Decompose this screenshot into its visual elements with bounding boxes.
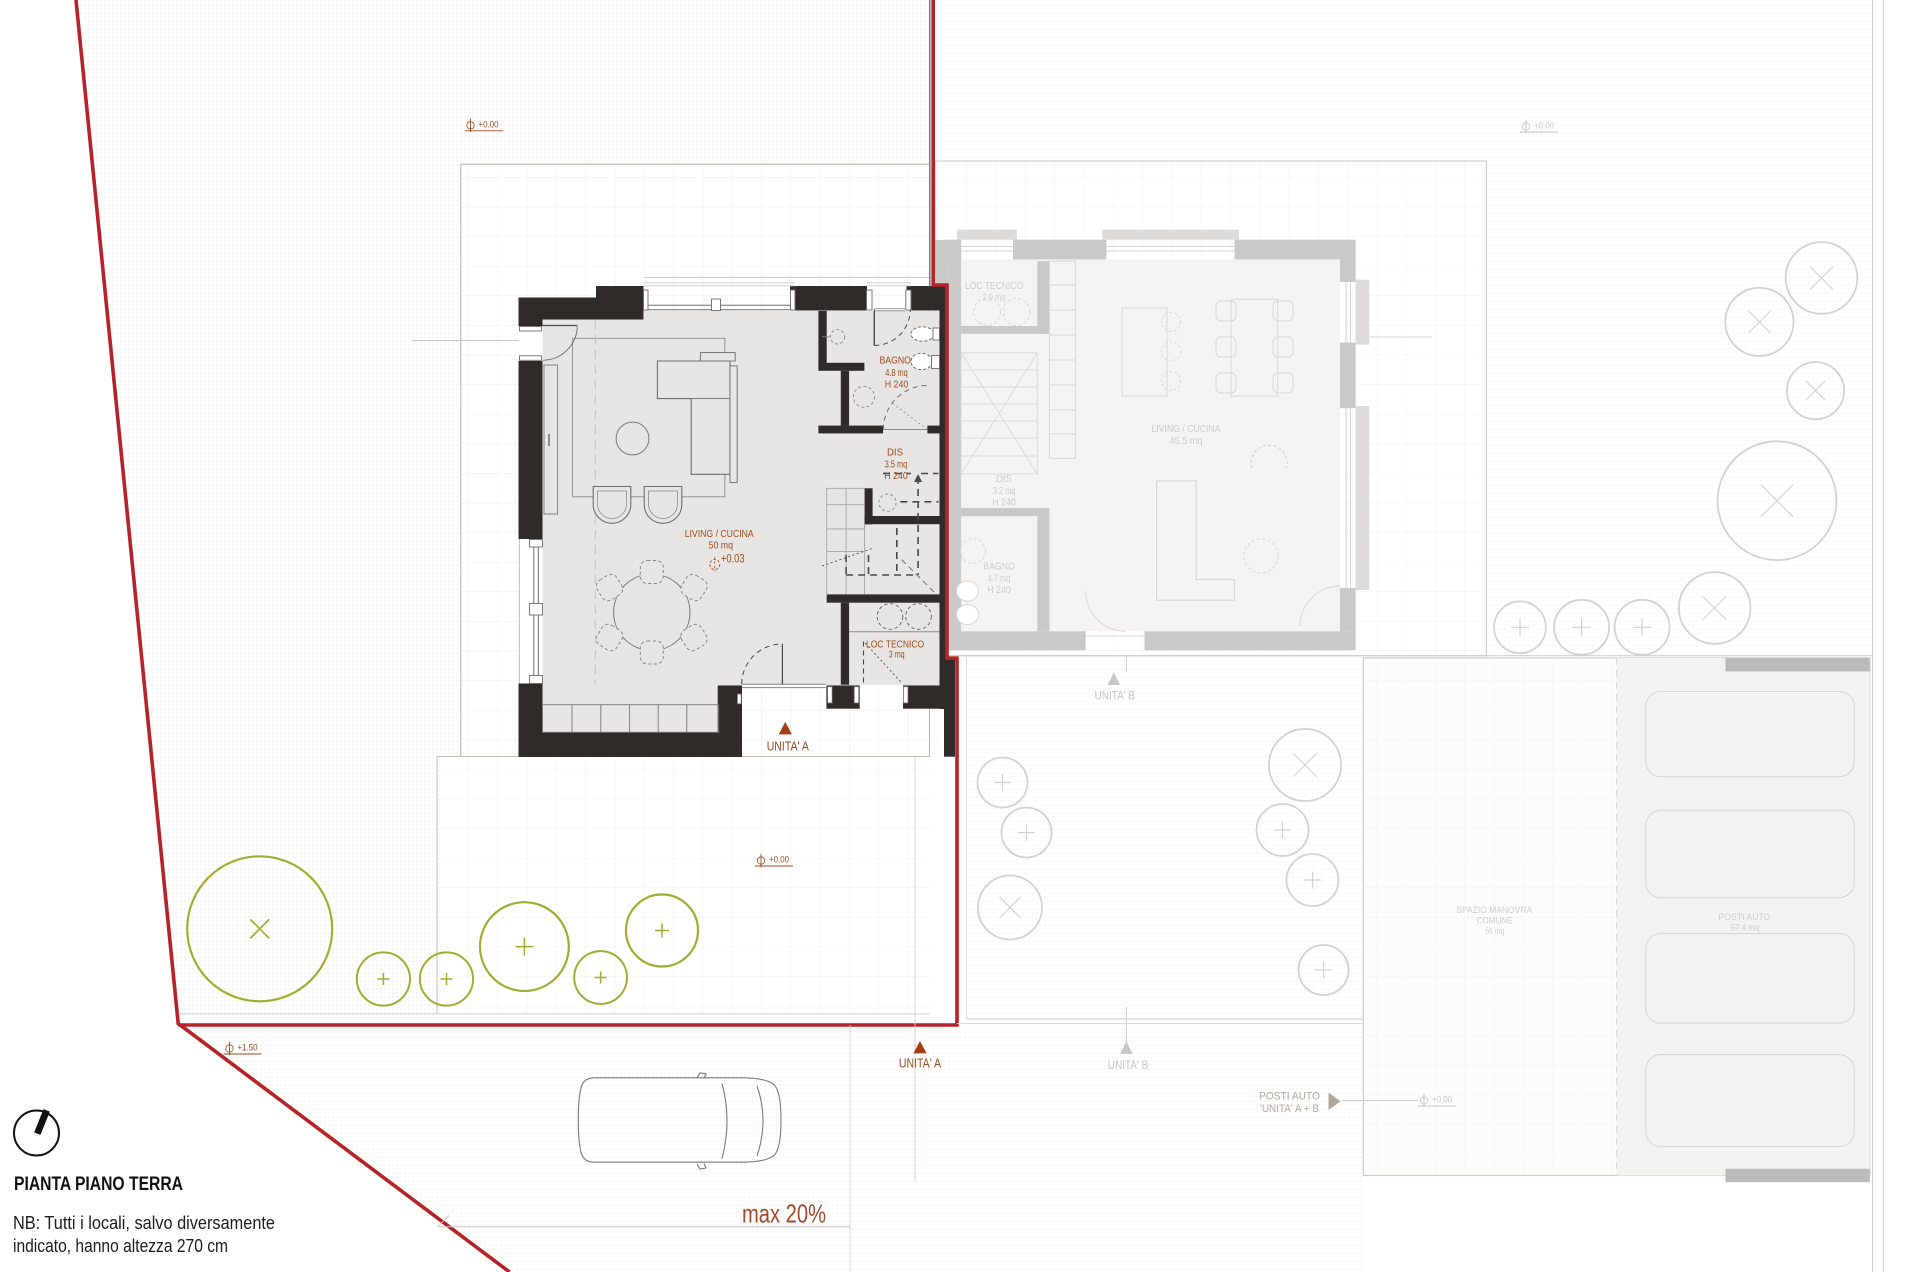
svg-text:UNITA' A: UNITA' A — [899, 1057, 942, 1071]
svg-text:+0.00: +0.00 — [1534, 121, 1554, 131]
svg-text:H 240: H 240 — [885, 379, 909, 390]
svg-text:LIVING / CUCINA: LIVING / CUCINA — [685, 529, 754, 540]
svg-text:LIVING / CUCINA: LIVING / CUCINA — [1152, 424, 1221, 435]
svg-text:H 240: H 240 — [992, 498, 1016, 509]
svg-text:3 mq: 3 mq — [889, 650, 905, 661]
svg-text:UNITA' B: UNITA' B — [1108, 1058, 1149, 1072]
svg-text:3.5 mq: 3.5 mq — [885, 459, 908, 470]
svg-text:+0.00: +0.00 — [479, 120, 499, 130]
svg-text:+1.50: +1.50 — [238, 1043, 258, 1053]
svg-text:H 240: H 240 — [884, 471, 908, 482]
svg-text:UNITA' A: UNITA' A — [767, 740, 810, 754]
svg-text:H 240: H 240 — [987, 585, 1011, 596]
svg-text:UNITA' B: UNITA' B — [1095, 689, 1136, 703]
svg-text:PIANTA PIANO TERRA: PIANTA PIANO TERRA — [14, 1173, 183, 1195]
svg-text:+0.03: +0.03 — [721, 554, 745, 566]
svg-text:56 mq: 56 mq — [1485, 926, 1504, 936]
svg-text:LOC TECNICO: LOC TECNICO — [965, 281, 1024, 292]
svg-text:indicato, hanno altezza 270 cm: indicato, hanno altezza 270 cm — [13, 1235, 228, 1256]
svg-text:50 mq: 50 mq — [709, 541, 734, 552]
svg-text:POSTI AUTO: POSTI AUTO — [1718, 912, 1770, 922]
svg-text:BAGNO: BAGNO — [983, 562, 1015, 573]
svg-text:SPAZIO MANOVRA: SPAZIO MANOVRA — [1456, 905, 1533, 915]
svg-text:3.2 mq: 3.2 mq — [993, 486, 1016, 497]
svg-text:DIS: DIS — [996, 474, 1012, 485]
svg-text:4.8 mq: 4.8 mq — [885, 368, 908, 379]
svg-text:+0.00: +0.00 — [769, 855, 789, 865]
svg-text:max 20%: max 20% — [742, 1199, 826, 1229]
svg-text:'UNITA' A + B: 'UNITA' A + B — [1260, 1103, 1319, 1115]
svg-text:BAGNO: BAGNO — [879, 356, 911, 367]
svg-text:57.4 mq: 57.4 mq — [1731, 922, 1760, 932]
svg-text:POSTI AUTO: POSTI AUTO — [1259, 1091, 1320, 1103]
svg-text:NB: Tutti i locali, salvo dive: NB: Tutti i locali, salvo diversamente — [13, 1212, 275, 1233]
svg-text:COMUNE: COMUNE — [1477, 916, 1513, 926]
svg-text:4.7 mq: 4.7 mq — [988, 574, 1011, 585]
svg-text:DIS: DIS — [887, 447, 903, 458]
svg-text:2.9 mq: 2.9 mq — [983, 293, 1006, 304]
svg-text:45.5 mq: 45.5 mq — [1170, 436, 1203, 447]
svg-text:+0.00: +0.00 — [1432, 1095, 1452, 1105]
